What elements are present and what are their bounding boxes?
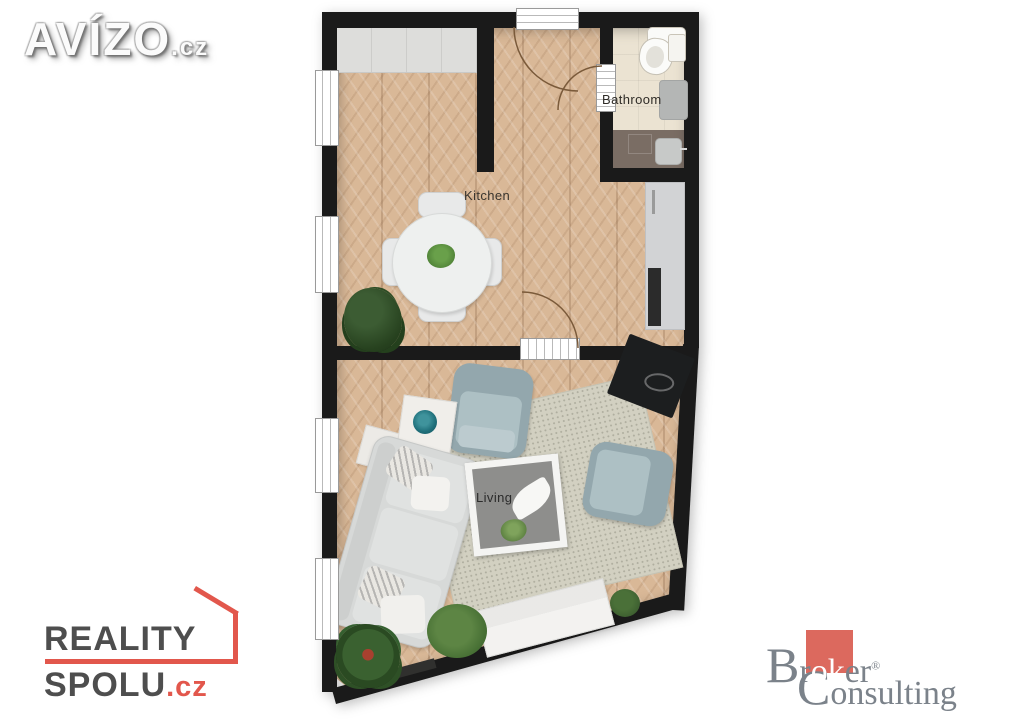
sofa-pillow: [410, 475, 450, 512]
sofa-pillow: [380, 595, 425, 635]
floor-plant-small: [610, 589, 640, 617]
kitchen-plant: [344, 288, 402, 352]
window: [315, 558, 339, 640]
reality-house-wall: [233, 611, 238, 662]
counter-handle: [652, 190, 655, 214]
washer-pipe: [680, 148, 687, 150]
coffee-table: [464, 453, 567, 556]
wall-top: [322, 12, 699, 28]
washing-machine: [655, 138, 682, 165]
wall-bathroom-upper: [600, 26, 613, 66]
broker-highlight-letters: ok: [811, 653, 845, 690]
spolu-text: SPOLU: [44, 666, 166, 704]
wall-bathroom-lower: [600, 110, 613, 172]
reality-tld: .cz: [166, 671, 208, 703]
floorplan-page: { "watermarks": { "avizo": { "name": "AV…: [0, 0, 1024, 724]
broker-consulting-logo: Broker® Consulting: [766, 622, 1006, 707]
wall-hallway: [477, 26, 494, 172]
floor-plant-red-center: [336, 624, 400, 688]
decor-bowl: [413, 410, 437, 434]
consulting-letters: onsulting: [830, 675, 957, 712]
window: [315, 70, 339, 146]
broker-initial: B: [766, 637, 799, 693]
living-label: Living: [476, 490, 512, 505]
reality-wordmark: REALITY: [44, 620, 196, 659]
armchair-right: [580, 439, 676, 528]
kitchen-counter-top: [337, 28, 477, 73]
bathroom-fixture-outline: [628, 134, 652, 154]
armchair-seat: [588, 448, 652, 516]
kitchen-label: Kitchen: [464, 188, 510, 203]
avizo-wordmark: AVÍZO: [24, 13, 171, 65]
vanity: [668, 34, 686, 62]
armchair-top: [445, 361, 535, 460]
window: [315, 216, 339, 293]
reality-house-roof: [193, 586, 238, 616]
floor-plant-grass: [427, 604, 487, 658]
avizo-logo: AVÍZO.cz: [24, 12, 209, 66]
wall-bathroom-bottom: [600, 168, 699, 182]
coffee-table-plant: [500, 518, 528, 543]
window: [315, 418, 339, 493]
bathroom-label: Bathroom: [602, 92, 662, 107]
stove: [648, 268, 661, 326]
reality-house-baseline: [45, 659, 238, 664]
bathroom-cabinet: [659, 80, 688, 120]
entrance-door: [516, 8, 579, 30]
avizo-tld: .cz: [171, 34, 209, 61]
tv-logo-mark: [643, 372, 675, 393]
living-kitchen-door: [520, 338, 580, 360]
leaf-dish: [506, 476, 557, 521]
spolu-wordmark: SPOLU.cz: [44, 666, 208, 705]
